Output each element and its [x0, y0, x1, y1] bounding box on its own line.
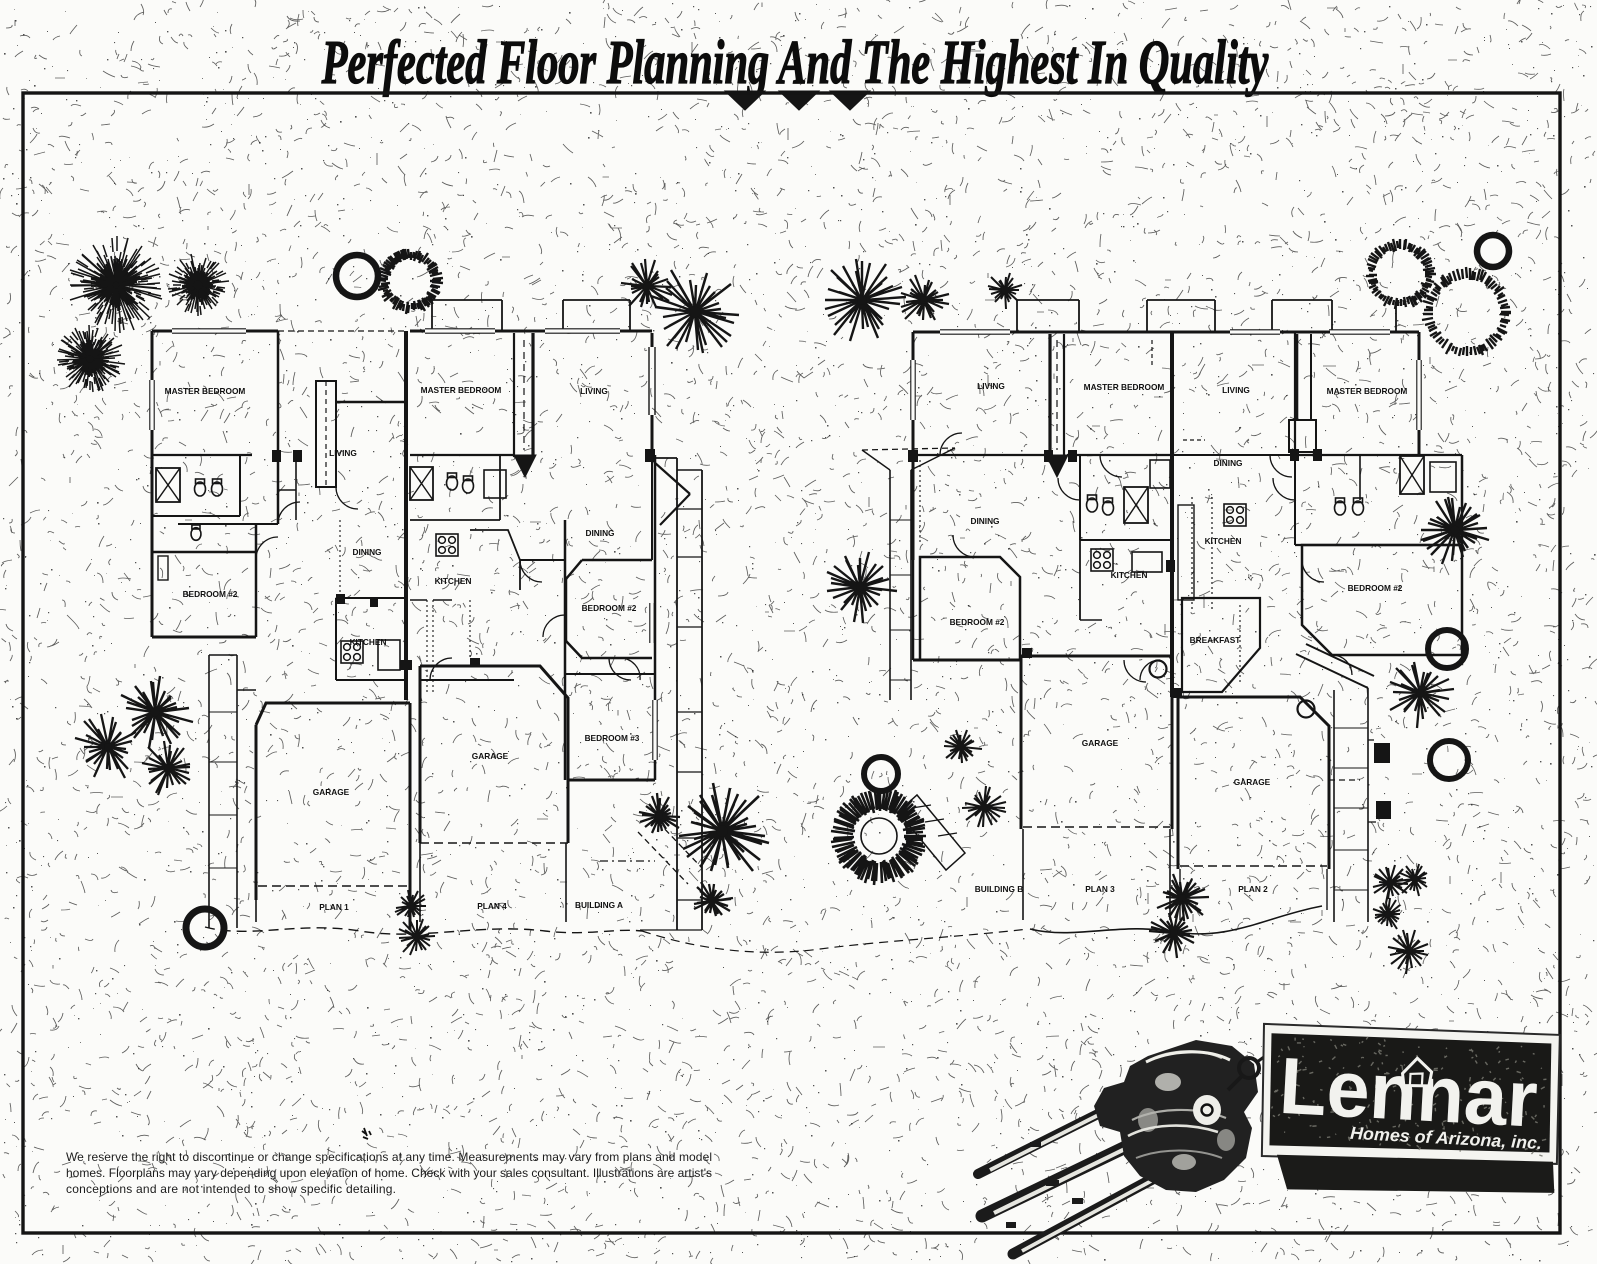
svg-text:BEDROOM #2: BEDROOM #2: [183, 589, 238, 599]
svg-text:conceptions and are not intend: conceptions and are not intended to show…: [66, 1182, 396, 1196]
svg-text:GARAGE: GARAGE: [1082, 738, 1119, 748]
svg-text:GARAGE: GARAGE: [1234, 777, 1271, 787]
svg-text:GARAGE: GARAGE: [313, 787, 350, 797]
svg-text:BUILDING A: BUILDING A: [575, 900, 623, 910]
svg-text:KITCHEN: KITCHEN: [350, 637, 387, 647]
svg-text:LIVING: LIVING: [1222, 385, 1250, 395]
svg-text:LIVING: LIVING: [580, 386, 608, 396]
svg-text:MASTER BEDROOM: MASTER BEDROOM: [1084, 382, 1165, 392]
svg-text:BREAKFAST: BREAKFAST: [1190, 635, 1241, 645]
svg-text:BEDROOM #3: BEDROOM #3: [585, 733, 640, 743]
svg-text:DINING: DINING: [585, 528, 614, 538]
svg-text:KITCHEN: KITCHEN: [1111, 570, 1148, 580]
svg-text:KITCHEN: KITCHEN: [435, 576, 472, 586]
svg-text:Perfected Floor Planning And T: Perfected Floor Planning And The Highest…: [321, 29, 1269, 97]
svg-text:MASTER BEDROOM: MASTER BEDROOM: [1327, 386, 1408, 396]
svg-text:DINING: DINING: [1213, 458, 1242, 468]
svg-text:LIVING: LIVING: [977, 381, 1005, 391]
svg-text:PLAN 3: PLAN 3: [1085, 884, 1115, 894]
svg-text:PLAN 4: PLAN 4: [477, 901, 507, 911]
svg-text:BEDROOM #2: BEDROOM #2: [582, 603, 637, 613]
svg-text:LIVING: LIVING: [329, 448, 357, 458]
svg-text:PLAN 2: PLAN 2: [1238, 884, 1268, 894]
svg-text:DINING: DINING: [970, 516, 999, 526]
svg-text:BEDROOM #2: BEDROOM #2: [1348, 583, 1403, 593]
svg-text:MASTER BEDROOM: MASTER BEDROOM: [421, 385, 502, 395]
svg-text:BEDROOM #2: BEDROOM #2: [950, 617, 1005, 627]
svg-text:GARAGE: GARAGE: [472, 751, 509, 761]
svg-text:BUILDING B: BUILDING B: [975, 884, 1023, 894]
svg-text:PLAN 1: PLAN 1: [319, 902, 349, 912]
svg-text:DINING: DINING: [352, 547, 381, 557]
svg-text:We reserve the right to discon: We reserve the right to discontinue or c…: [66, 1150, 712, 1164]
svg-text:KITCHEN: KITCHEN: [1205, 536, 1242, 546]
svg-text:homes. Floorplans may vary dep: homes. Floorplans may vary depending upo…: [66, 1166, 712, 1180]
svg-text:MASTER BEDROOM: MASTER BEDROOM: [165, 386, 246, 396]
